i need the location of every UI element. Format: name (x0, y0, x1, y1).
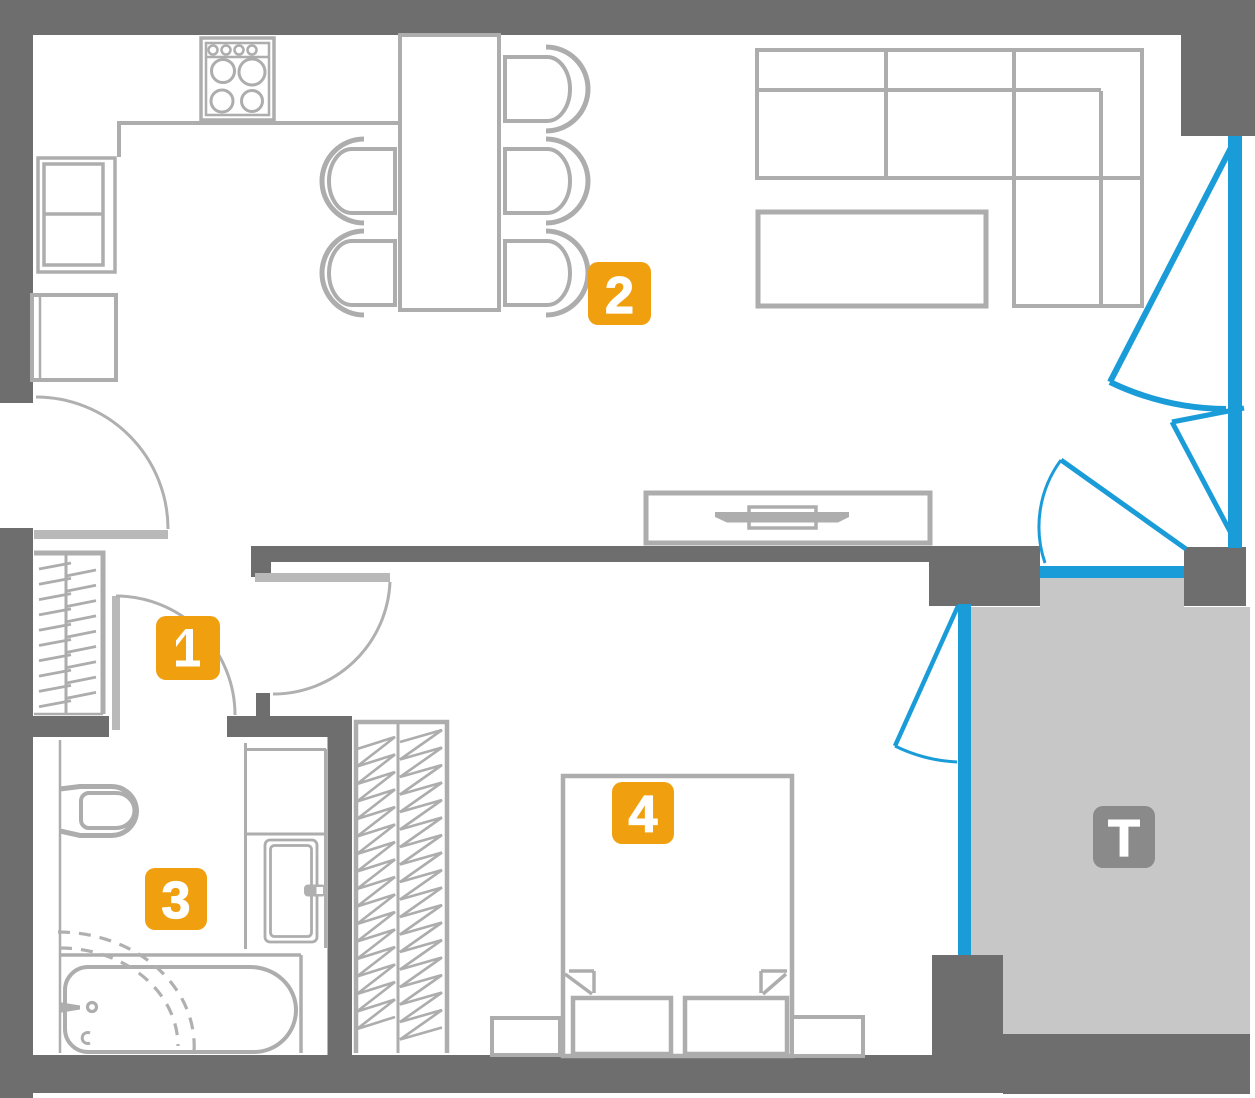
svg-text:3: 3 (162, 872, 191, 930)
svg-text:4: 4 (629, 786, 658, 844)
svg-text:2: 2 (605, 267, 634, 325)
svg-text:T: T (1108, 810, 1140, 868)
